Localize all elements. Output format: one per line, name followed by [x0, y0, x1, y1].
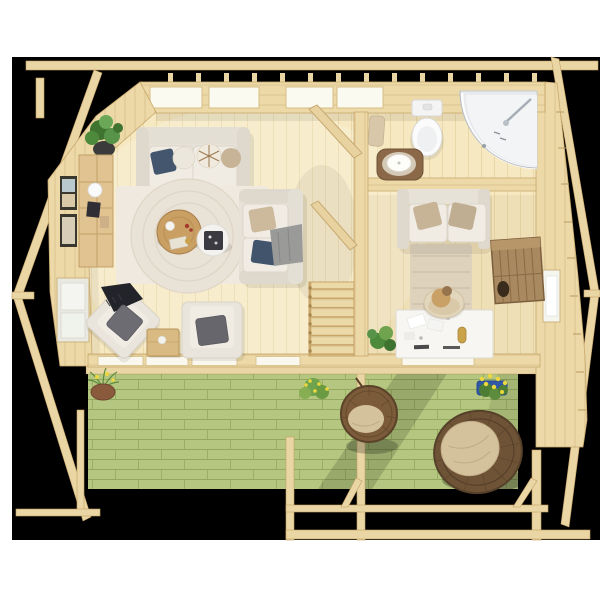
roof-window [209, 87, 259, 108]
roof-window [286, 87, 333, 108]
shelf-decor-dark [86, 201, 100, 217]
gray-pillow [195, 315, 228, 346]
front-glass-door [256, 357, 300, 366]
accent-armchair [182, 302, 245, 361]
gable-stub-beam [36, 78, 44, 118]
patterned-round-pillow [197, 144, 221, 168]
wooden-side-table [147, 329, 181, 358]
pergola-beam-upper [286, 505, 548, 512]
towel [368, 116, 385, 147]
egg-chair-cushion [348, 405, 384, 433]
shower-handle [482, 144, 486, 148]
gray-throw [270, 224, 303, 266]
right-wall-window [543, 270, 560, 322]
rustic-cabinet [491, 237, 544, 303]
picture-frame [60, 176, 77, 210]
product-render-page [0, 0, 600, 600]
roof-window [337, 87, 383, 108]
cup [166, 222, 175, 231]
gold-object [458, 327, 466, 343]
shelf-books [100, 216, 109, 228]
wash-basin-stand [377, 149, 423, 180]
cream-round-pillow [173, 147, 195, 169]
left-wall-window [57, 278, 89, 342]
rafter-tails [150, 73, 542, 82]
beige-pillow [248, 206, 277, 233]
right-apex-tie [584, 290, 600, 297]
wall-shelf [79, 155, 113, 267]
office-loveseat [397, 189, 492, 254]
roof-window [150, 87, 202, 108]
floor-plan-render [0, 0, 600, 600]
wall-clock [88, 183, 102, 197]
pergola-beam-lower [286, 530, 590, 539]
gold-trinket [185, 238, 191, 244]
dark-tray [204, 231, 223, 250]
pergola-post-right [532, 450, 541, 540]
berries-decor [185, 224, 189, 228]
desk-item [443, 346, 460, 349]
ridge-beam [26, 61, 598, 70]
left-apex-tie [12, 292, 34, 299]
person-hair-bun [442, 286, 452, 296]
picture-frame [60, 214, 77, 247]
left-support-post [77, 410, 84, 514]
navy-pillow [150, 148, 177, 175]
left-support-beam [16, 509, 100, 516]
pergola-post-left [286, 437, 294, 540]
cup [158, 336, 166, 344]
desk-keyboard [414, 345, 429, 350]
beige-pillow [448, 202, 477, 231]
knit-pillow [221, 148, 241, 168]
loveseat-sofa [239, 189, 307, 288]
